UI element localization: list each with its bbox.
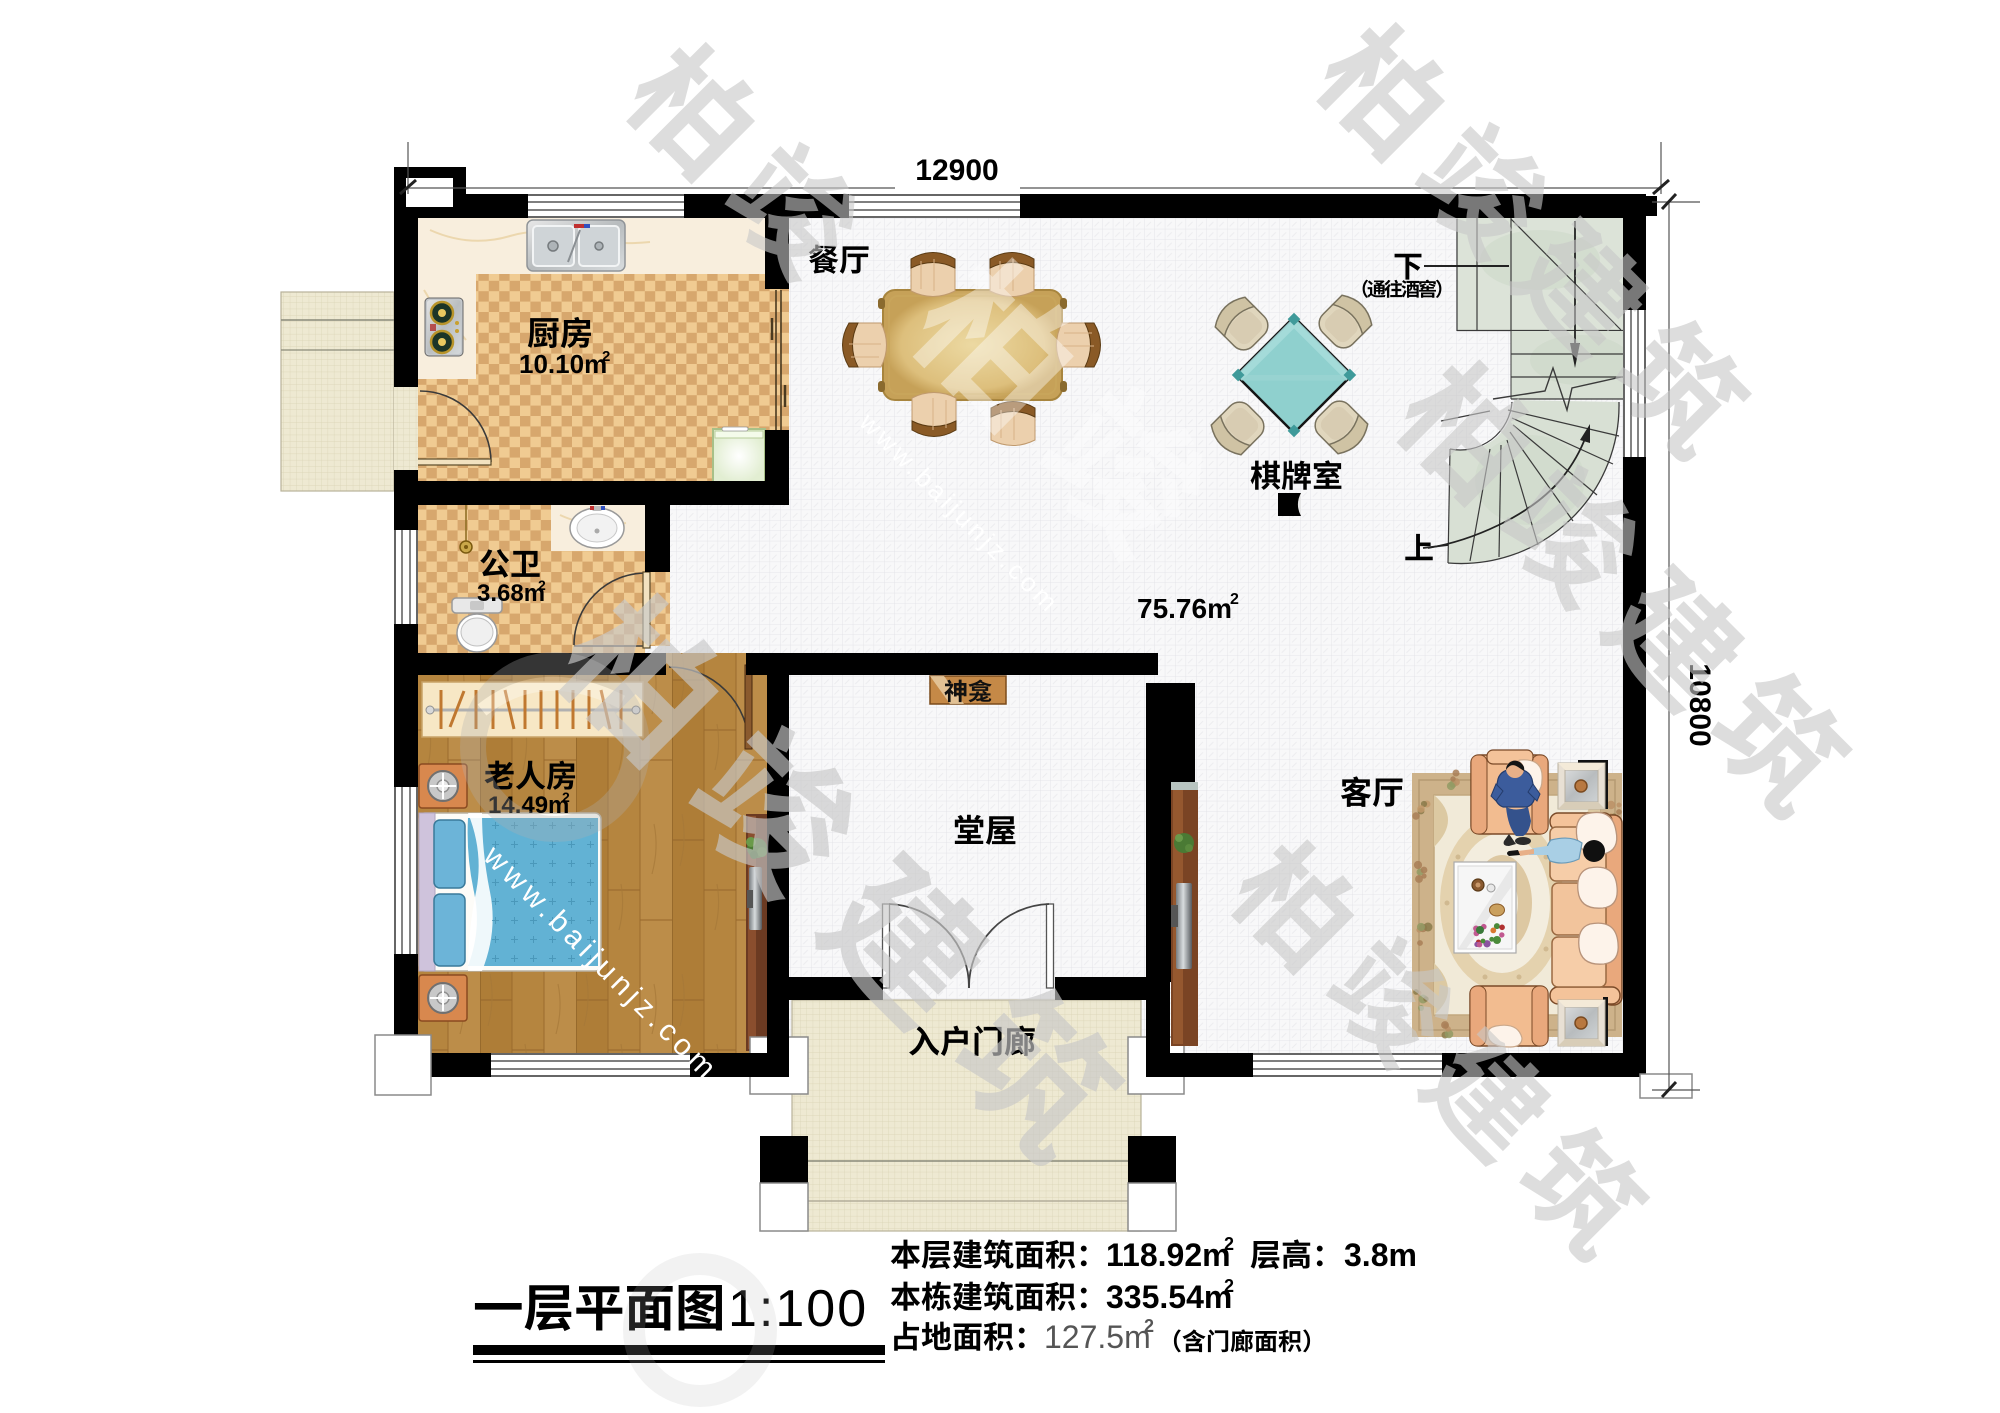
svg-text:3.8m: 3.8m [1344,1237,1417,1273]
svg-text:75.76m: 75.76m [1137,593,1232,624]
svg-text:127.5m: 127.5m [1044,1319,1151,1355]
svg-text:2: 2 [1224,1234,1234,1254]
svg-text:2: 2 [1224,1276,1234,1296]
svg-text:118.92m: 118.92m [1106,1237,1231,1273]
svg-text:2: 2 [602,348,610,365]
svg-text:2: 2 [1230,591,1239,608]
svg-text:10.10m: 10.10m [519,349,607,379]
svg-text:2: 2 [538,577,546,593]
svg-text:2: 2 [1144,1316,1154,1336]
svg-text:3.68m: 3.68m [477,580,545,607]
svg-text:12900: 12900 [915,154,998,187]
svg-text:2: 2 [562,789,570,805]
svg-text:335.54m: 335.54m [1106,1279,1232,1315]
